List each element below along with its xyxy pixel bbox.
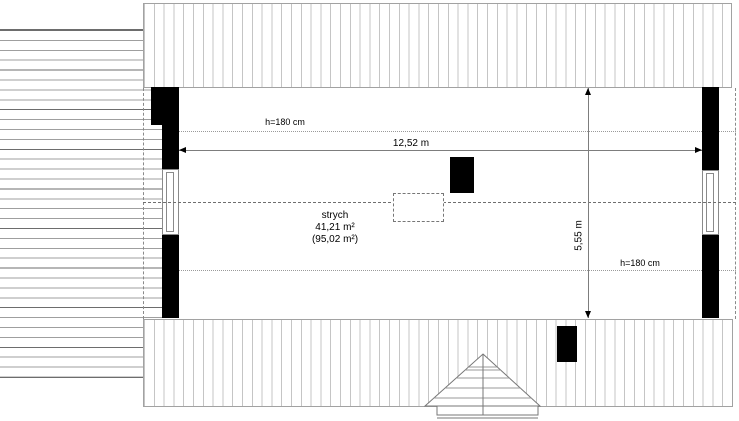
terrace-deck-hatch <box>0 29 162 378</box>
eave-line-right <box>735 88 736 319</box>
dimension-width-line <box>179 150 702 151</box>
wall-right-bottom <box>702 235 719 318</box>
wall-left-pier <box>151 87 162 125</box>
headroom-line-bottom <box>179 270 736 271</box>
dimension-depth-arrow-top <box>585 88 591 95</box>
wall-right-top <box>702 87 719 170</box>
attic-floor-plan: 12,52 m 5,55 m h=180 cm h=180 cm strych … <box>0 0 739 421</box>
headroom-label-top: h=180 cm <box>251 117 319 127</box>
headroom-label-bottom: h=180 cm <box>606 258 674 268</box>
room-total-area: (95,02 m²) <box>290 234 380 246</box>
room-area: 41,21 m² <box>290 222 380 234</box>
dimension-width-arrow-left <box>179 147 186 153</box>
wall-left-top <box>162 87 179 169</box>
headroom-line-top <box>179 131 736 132</box>
dimension-depth-label: 5,55 m <box>574 206 585 266</box>
room-label: strych 41,21 m² (95,02 m²) <box>290 210 380 246</box>
floor-opening-dashed <box>393 193 444 222</box>
room-name: strych <box>290 210 380 222</box>
dormer-icon <box>420 351 544 421</box>
roof-slope-top <box>143 3 732 88</box>
chimney-top <box>450 157 474 193</box>
dimension-width-label: 12,52 m <box>373 138 449 149</box>
dimension-depth-arrow-bottom <box>585 311 591 318</box>
dimension-depth-line <box>588 88 589 318</box>
eave-line-left <box>143 88 144 319</box>
chimney-bottom <box>557 326 577 362</box>
wall-left-bottom <box>162 235 179 318</box>
dimension-width-arrow-right <box>695 147 702 153</box>
